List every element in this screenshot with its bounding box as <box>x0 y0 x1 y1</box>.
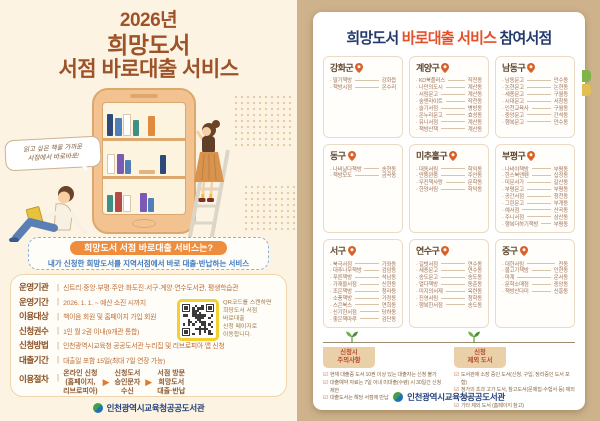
leader-line <box>446 87 465 88</box>
note-item-text: 기타 제외 도서 (홈페이지 참고) <box>461 403 524 411</box>
shelf-row <box>103 179 185 214</box>
leader-line <box>527 87 551 88</box>
label-divider: | <box>57 355 59 364</box>
district-name-label: 남동구 <box>502 61 525 74</box>
halftone-dots <box>243 184 295 230</box>
intro-description: 내가 신청한 희망도서를 지역서점에서 바로 대출·반납하는 서비스 <box>29 258 268 269</box>
phone-home-button <box>132 219 156 228</box>
leader-line <box>355 87 379 88</box>
leader-line <box>360 318 379 319</box>
store-row: · 행복문고만수동 <box>502 118 568 125</box>
leader-line <box>532 175 551 176</box>
note-item-text: 현재 대출중 도서 10권 이상 있는 대출자는 신청 불가 <box>330 372 437 380</box>
speech-line-2: 서점에서 바로바로! <box>27 153 79 163</box>
district-card: 강화군· 딸기책방강화읍· 책방시점온수리 <box>323 56 403 138</box>
map-pin-icon <box>520 246 528 256</box>
leader-line <box>446 304 465 305</box>
leader-line <box>441 263 465 264</box>
district-name-label: 서구 <box>330 244 346 257</box>
leader-line <box>527 203 551 204</box>
leader-line <box>441 94 465 95</box>
right-poster-title: 희망도서 바로대출 서비스 참여서점 <box>313 27 585 48</box>
label-divider: | <box>57 312 59 321</box>
store-location: 학익동 <box>468 185 482 193</box>
leader-line <box>448 80 465 81</box>
district-name-label: 연수구 <box>416 244 439 257</box>
qr-finder-icon <box>182 304 190 312</box>
district-card: 남동구· 남동문고만수동· 논현문고논현동· 세종문고구월동· 시대문고서창동·… <box>495 56 575 138</box>
store-name: · 책방모도 <box>330 171 352 179</box>
speech-bubble: 읽고 싶은 책을 가까운 서점에서 바로바로! <box>4 136 101 172</box>
leader-line <box>446 291 465 292</box>
poster-title-part: 서비스 <box>457 30 499 47</box>
leader-line <box>541 223 551 224</box>
district-card: 중구· 대한서림전동· 물고기책방인현동· 마계운서동· 문학소매점중앙동· 책… <box>495 239 575 328</box>
info-row-label: 대출기간 <box>19 354 56 366</box>
store-name: · 행복한서점 <box>416 301 443 309</box>
label-divider: | <box>57 341 59 350</box>
info-row-value: 1인 월 2권 이내(9개관 통합) <box>63 326 139 336</box>
store-name: · 행복더하기책방 <box>502 220 538 228</box>
info-row: 대출기간|대출일 포함 15일(최대 7일 연장 가능) <box>19 353 278 368</box>
district-name-label: 동구 <box>330 149 346 162</box>
library-logo-icon <box>93 403 103 413</box>
title-line2: 희망도서 <box>0 32 297 58</box>
poster-pair-image: 2026년 희망도서 서점 바로대출 서비스 <box>0 0 600 421</box>
man-reading-illustration <box>4 182 96 242</box>
leader-line <box>532 270 551 271</box>
store-name: · 책방산책 <box>416 125 438 133</box>
map-pin-icon <box>441 246 449 256</box>
sprout-icon <box>467 330 481 343</box>
leader-line <box>441 168 465 169</box>
leader-line <box>446 182 465 183</box>
info-row-value: 신트리·중앙·부평·주안·화도진·서구·계양·연수도서관, 평생학습관 <box>63 282 238 292</box>
left-poster-title: 2026년 희망도서 서점 바로대출 서비스 <box>0 0 297 82</box>
phone-speaker-bar <box>130 94 158 98</box>
leader-line <box>527 182 551 183</box>
district-name: 연수구 <box>416 244 482 257</box>
leader-line <box>522 209 551 210</box>
right-poster: 희망도서 바로대출 서비스 참여서점 강화군· 딸기책방강화읍· 책방시점온수리… <box>300 0 600 421</box>
district-card: 계양구· KD북플러스작전동· 나만의도시계산동· 서림문고계산동· 숲앤라이트… <box>409 56 489 138</box>
store-name: · 행복문고 <box>502 118 524 126</box>
store-name: · 책방시점 <box>330 83 352 91</box>
qr-finder-icon <box>206 304 214 312</box>
leader-line <box>364 270 378 271</box>
district-name: 중구 <box>502 244 568 257</box>
qr-block: QR코드를 스캔하면 희망도서 서점 바로대출 신청 페이지로 이동합니다. <box>177 299 281 341</box>
poster-title-part: 희망도서 <box>346 30 401 47</box>
store-name: · 책방산다미 <box>502 287 529 295</box>
district-name-label: 부평구 <box>502 149 525 162</box>
bookmark-tab-green <box>582 70 591 82</box>
checkbox-icon: ☑ <box>454 403 459 411</box>
info-row-label: 신청방법 <box>19 339 56 351</box>
store-name: · 좋은책마루 <box>330 315 357 323</box>
leader-line <box>364 168 378 169</box>
info-row-label: 운영기관 <box>19 281 56 293</box>
store-location: 부평동 <box>554 220 568 228</box>
district-name-label: 강화군 <box>330 61 353 74</box>
arrow-icon: ▶ <box>103 377 110 388</box>
info-row: 운영기관|신트리·중앙·부평·주안·화도진·서구·계양·연수도서관, 평생학습관 <box>19 280 278 295</box>
poster-title-part: 바로대출 <box>402 30 457 47</box>
note-item-text: 도서관에 소장 중인 도서(신청, 구입, 정리중인 도서 포함) <box>461 372 575 388</box>
info-row-value: 책이음 회원 및 홈페이지 가입 회원 <box>63 311 156 321</box>
procedure-step: 서점 방문 희망도서 대출·반납 <box>157 369 185 396</box>
info-row-label: 이용대상 <box>19 310 56 322</box>
bookshelf-illustration: 읽고 싶은 책을 가까운 서점에서 바로바로! <box>0 88 297 236</box>
map-pin-icon <box>449 151 457 161</box>
leader-line <box>527 263 556 264</box>
map-pin-icon <box>348 246 356 256</box>
arrow-icon: ▶ <box>145 377 152 388</box>
sprout-icon <box>345 330 359 343</box>
district-card: 서구· 북극서점가좌동· 대추나무책방검암동· 푸른책방석남동· 가재울서점신현… <box>323 239 403 328</box>
map-pin-icon <box>527 63 535 73</box>
note-item: ☑도서관에 소장 중인 도서(신청, 구입, 정리중인 도서 포함) <box>454 372 575 388</box>
district-name-label: 중구 <box>502 244 518 257</box>
map-pin-icon <box>355 63 363 73</box>
district-name: 계양구 <box>416 61 482 74</box>
library-logo-icon <box>393 392 403 402</box>
district-name: 부평구 <box>502 149 568 162</box>
store-row: · 책방산책계산동 <box>416 125 482 132</box>
note-tab-label: 신청시 주의사항 <box>323 347 375 368</box>
label-divider: | <box>57 283 59 292</box>
info-row-label: 신청권수 <box>19 325 56 337</box>
district-name-label: 미추홀구 <box>416 149 447 162</box>
poster-title-part: 참여서점 <box>500 30 552 47</box>
store-row: · 한양서림학익동 <box>416 186 482 193</box>
title-year: 2026년 <box>0 9 297 32</box>
label-divider: | <box>57 369 59 382</box>
service-intro-box: 희망도서 서점 바로대출 서비스는? 내가 신청한 희망도서를 지역서점에서 바… <box>28 237 269 270</box>
district-name: 미추홀구 <box>416 149 482 162</box>
leader-line <box>441 121 465 122</box>
leader-line <box>532 284 551 285</box>
leader-line <box>527 121 551 122</box>
districts-grid: 강화군· 딸기책방강화읍· 책방시점온수리계양구· KD북플러스작전동· 나만의… <box>323 56 575 328</box>
store-location: 검단동 <box>382 315 396 323</box>
left-poster-footer: 인천광역시교육청공공도서관 <box>0 402 297 414</box>
district-card: 미추홀구· 대동서림학익동· 딴뚬꽌뚬주안동· 우진책사랑문학동· 한양서림학익… <box>409 144 489 233</box>
bookshelf-shelves <box>102 102 186 215</box>
store-row: · 행복더하기책방부평동 <box>502 220 568 227</box>
leader-line <box>527 189 551 190</box>
district-card: 연수구· 길벗서점연수동· 세종문고연수동· 송도문고송도동· 열다책방동춘동·… <box>409 239 489 328</box>
leader-line <box>355 175 379 176</box>
shelf-row <box>103 103 185 141</box>
leader-line <box>527 94 551 95</box>
district-name: 서구 <box>330 244 396 257</box>
procedure-step: 신청도서 승인문자 수신 <box>115 369 141 396</box>
right-poster-footer: 인천광역시교육청공공도서관 <box>313 391 585 403</box>
district-name-label: 계양구 <box>416 61 439 74</box>
map-pin-icon <box>441 63 449 73</box>
intro-pill-heading: 희망도서 서점 바로대출 서비스는? <box>70 241 227 255</box>
leader-line <box>441 277 465 278</box>
leader-line <box>355 291 379 292</box>
service-info-box: 운영기관|신트리·중앙·부평·주안·화도진·서구·계양·연수도서관, 평생학습관… <box>10 274 287 397</box>
note-item: ☑기타 제외 도서 (홈페이지 참고) <box>454 403 575 411</box>
leader-line <box>517 277 550 278</box>
store-location: 신흥동 <box>554 287 568 295</box>
leader-line <box>441 298 465 299</box>
leader-line <box>441 128 465 129</box>
store-row: · 책방산다미신흥동 <box>502 288 568 295</box>
district-card: 동구· 나비날다책방송현동· 책방모도금곡동 <box>323 144 403 233</box>
leader-line <box>527 216 551 217</box>
info-row-label: 운영기간 <box>19 296 56 308</box>
checkbox-icon: ☑ <box>323 372 328 380</box>
leader-line <box>441 175 465 176</box>
participating-stores-card: 희망도서 바로대출 서비스 참여서점 강화군· 딸기책방강화읍· 책방시점온수리… <box>313 12 585 410</box>
note-tab-label: 신청 제외 도서 <box>454 347 506 368</box>
leader-line <box>441 270 465 271</box>
leader-line <box>441 284 465 285</box>
store-location: 송도동 <box>468 301 482 309</box>
leader-line <box>441 108 465 109</box>
leader-line <box>532 108 551 109</box>
label-divider: | <box>57 326 59 335</box>
info-row-value: 인천광역시교육청 공공도서관 누리집 및 리브로피아 앱 신청 <box>63 340 224 350</box>
title-line3: 서점 바로대출 서비스 <box>0 58 297 82</box>
leader-line <box>446 114 465 115</box>
store-row: · 책방모도금곡동 <box>330 172 396 179</box>
leader-line <box>355 277 379 278</box>
leader-line <box>355 80 379 81</box>
leader-line <box>441 189 465 190</box>
store-row: · 행복한서점송도동 <box>416 301 482 308</box>
leader-line <box>532 291 551 292</box>
store-row: · 좋은책마루검단동 <box>330 315 396 322</box>
district-name: 남동구 <box>502 61 568 74</box>
leader-line <box>355 298 379 299</box>
note-item: ☑현재 대출중 도서 10권 이상 있는 대출자는 신청 불가 <box>323 372 444 380</box>
store-location: 온수리 <box>382 83 396 91</box>
procedure-steps: 온라인 신청 (홈페이지, 리브로피아)▶신청도서 승인문자 수신▶서점 방문 … <box>63 369 185 396</box>
leader-line <box>532 168 551 169</box>
shelf-row <box>103 141 185 179</box>
label-divider: | <box>57 297 59 306</box>
library-name: 인천광역시교육청공공도서관 <box>407 391 505 403</box>
leader-line <box>527 101 551 102</box>
map-pin-icon <box>527 151 535 161</box>
district-name: 동구 <box>330 149 396 162</box>
store-row: · 책방시점온수리 <box>330 84 396 91</box>
bookmark-tab-yellow <box>582 84 591 96</box>
leader-line <box>527 80 551 81</box>
procedure-label: 이용절차 <box>19 369 56 385</box>
leader-line <box>355 304 379 305</box>
procedure-row: 이용절차 | 온라인 신청 (홈페이지, 리브로피아)▶신청도서 승인문자 수신… <box>19 369 278 396</box>
leader-line <box>527 114 551 115</box>
leader-line <box>360 311 379 312</box>
procedure-step: 온라인 신청 (홈페이지, 리브로피아) <box>63 369 98 396</box>
left-poster: 2026년 희망도서 서점 바로대출 서비스 <box>0 0 297 421</box>
map-pin-icon <box>348 151 356 161</box>
store-location: 금곡동 <box>382 171 396 179</box>
leader-line <box>446 101 465 102</box>
library-name: 인천광역시교육청공공도서관 <box>107 402 205 414</box>
store-location: 계산동 <box>468 125 482 133</box>
store-name: · 한양서림 <box>416 185 438 193</box>
qr-caption: QR코드를 스캔하면 희망도서 서점 바로대출 신청 페이지로 이동합니다. <box>223 300 281 340</box>
info-row-value: 대출일 포함 15일(최대 7일 연장 가능) <box>63 355 165 365</box>
leader-line <box>360 284 379 285</box>
district-card: 부평구· 나비야책방부평동· 한스북앤펜십정동· 미문서가갈산동· 부평문고부평… <box>495 144 575 233</box>
checkbox-icon: ☑ <box>454 372 459 388</box>
info-row-value: 2026. 1. 1. ~ 예산 소진 시까지 <box>63 297 146 307</box>
halftone-dots <box>233 94 291 148</box>
leader-line <box>355 263 379 264</box>
qr-finder-icon <box>182 328 190 336</box>
leader-line <box>527 196 551 197</box>
district-name: 강화군 <box>330 61 396 74</box>
qr-code <box>177 299 219 341</box>
store-location: 만수동 <box>554 118 568 126</box>
